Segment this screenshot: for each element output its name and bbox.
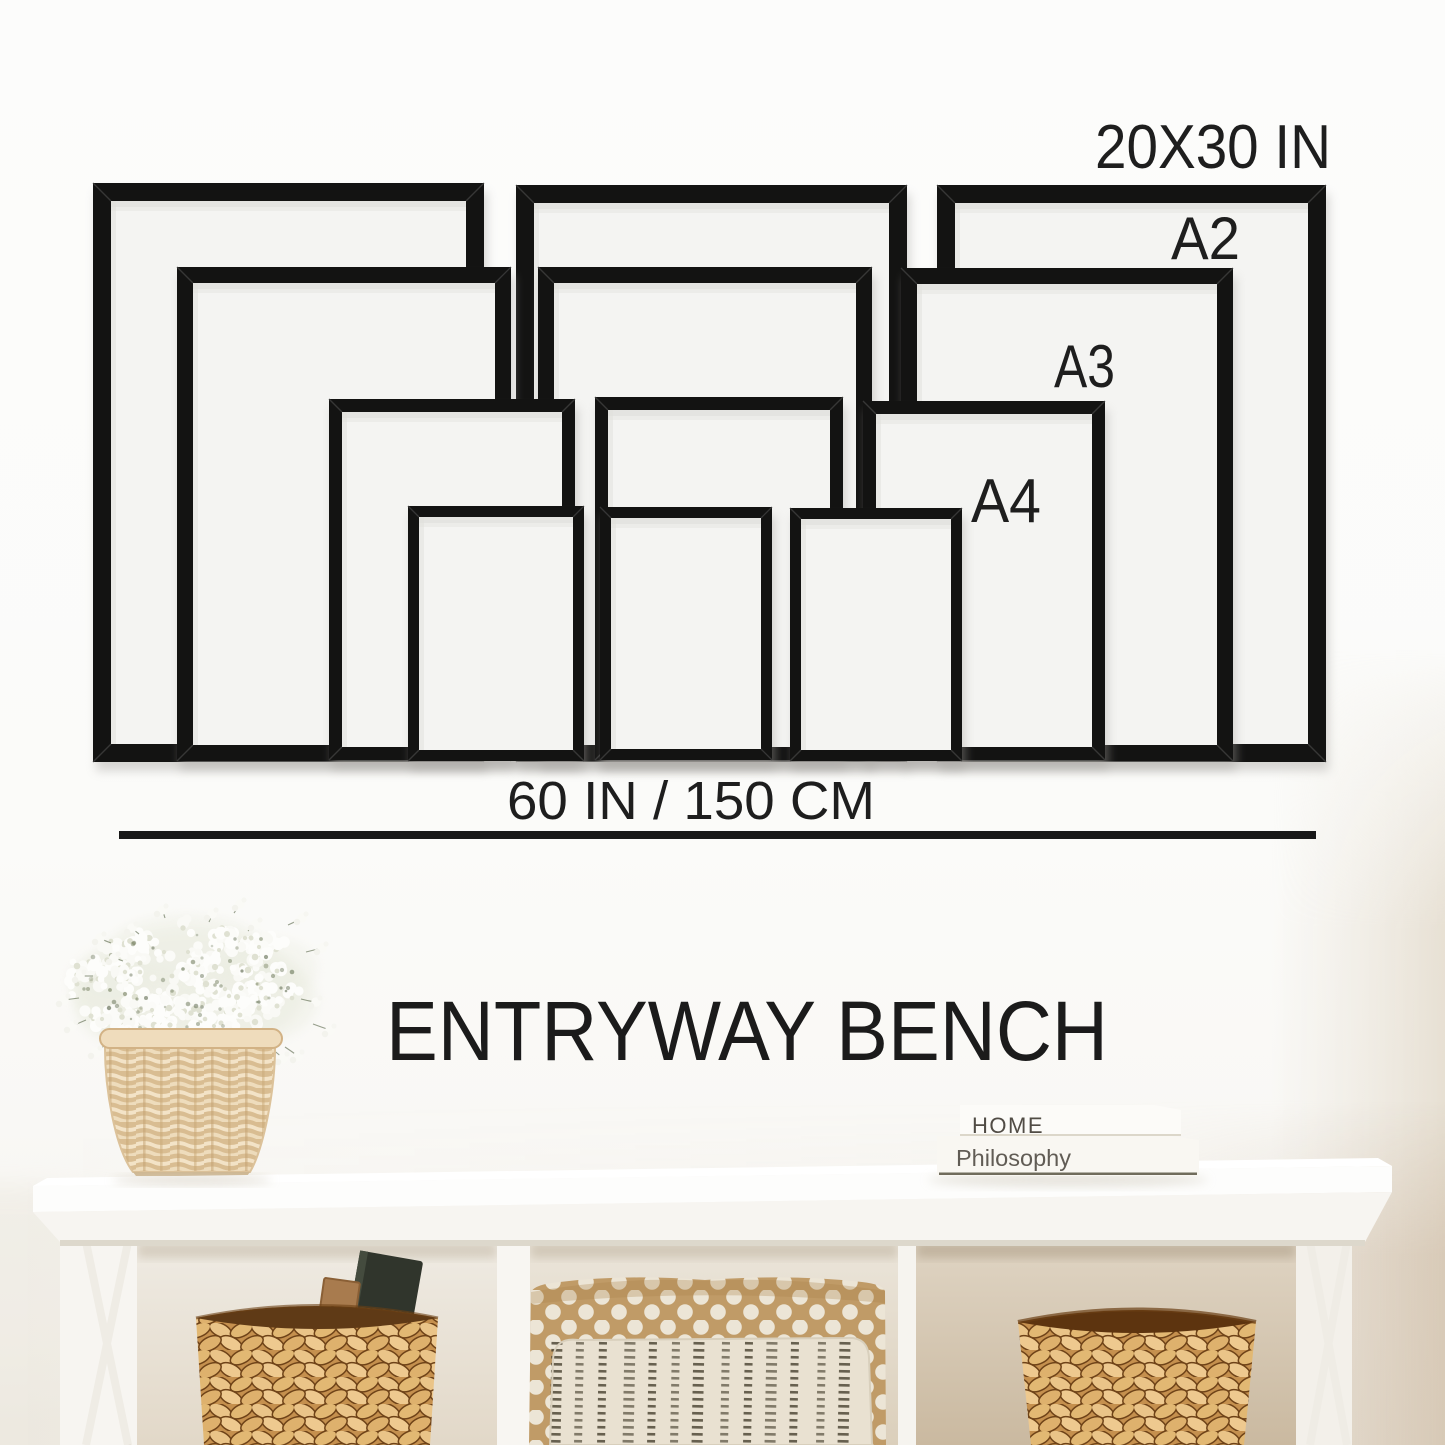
svg-text:A4: A4 — [971, 467, 1041, 536]
svg-text:60 IN / 150 CM: 60 IN / 150 CM — [507, 771, 875, 831]
svg-text:ENTRYWAY BENCH: ENTRYWAY BENCH — [386, 984, 1108, 1078]
svg-text:HOME: HOME — [972, 1113, 1044, 1138]
svg-text:20X30 IN: 20X30 IN — [1095, 113, 1331, 182]
svg-text:A3: A3 — [1054, 333, 1115, 400]
svg-text:A2: A2 — [1171, 205, 1240, 272]
svg-text:Philosophy: Philosophy — [956, 1145, 1071, 1171]
